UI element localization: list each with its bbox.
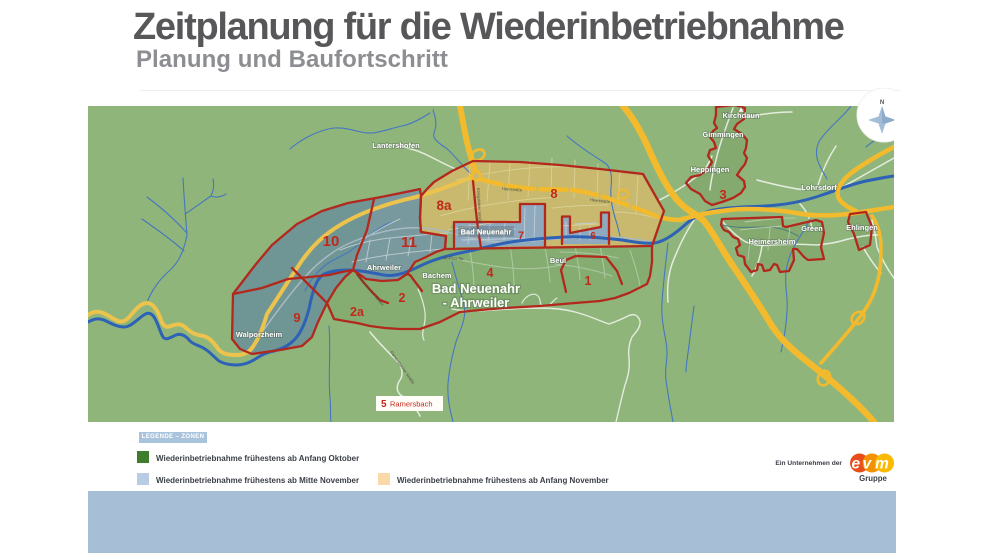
svg-text:N: N: [880, 100, 884, 106]
svg-text:Beul: Beul: [550, 256, 566, 265]
svg-text:Ahrweiler: Ahrweiler: [367, 263, 401, 272]
svg-text:Gimmingen: Gimmingen: [702, 130, 744, 139]
svg-text:11: 11: [401, 234, 417, 251]
svg-text:Bad Neuenahr: Bad Neuenahr: [461, 228, 512, 237]
svg-text:Walporzheim: Walporzheim: [236, 330, 283, 339]
svg-text:4: 4: [487, 266, 494, 280]
svg-text:8: 8: [550, 186, 557, 201]
svg-text:2: 2: [399, 291, 406, 305]
svg-text:Kirchdaun: Kirchdaun: [722, 111, 760, 120]
svg-text:1: 1: [585, 274, 592, 288]
svg-text:Gruppe: Gruppe: [859, 474, 887, 483]
svg-text:7: 7: [518, 230, 524, 242]
svg-text:5: 5: [381, 399, 387, 410]
svg-text:e: e: [852, 456, 861, 473]
svg-text:Ramersbach: Ramersbach: [390, 400, 433, 409]
svg-text:Heimersheim: Heimersheim: [748, 237, 795, 246]
svg-text:Bachem: Bachem: [422, 271, 452, 280]
svg-text:3: 3: [719, 187, 726, 202]
svg-text:Ehlingen: Ehlingen: [846, 223, 878, 232]
svg-text:2a: 2a: [350, 305, 365, 319]
svg-text:Lohrsdorf: Lohrsdorf: [801, 183, 837, 192]
svg-text:- Ahrweiler: - Ahrweiler: [443, 295, 510, 310]
svg-text:Bad Neuenahr: Bad Neuenahr: [432, 281, 520, 296]
svg-text:Green: Green: [801, 224, 823, 233]
svg-text:Heppingen: Heppingen: [691, 165, 730, 174]
svg-text:Lantershofen: Lantershofen: [372, 141, 420, 150]
svg-text:v: v: [863, 456, 873, 473]
svg-text:6: 6: [590, 231, 596, 242]
svg-text:8a: 8a: [436, 198, 452, 213]
svg-text:10: 10: [323, 233, 340, 250]
svg-text:9: 9: [293, 310, 300, 325]
svg-text:m: m: [875, 456, 889, 473]
